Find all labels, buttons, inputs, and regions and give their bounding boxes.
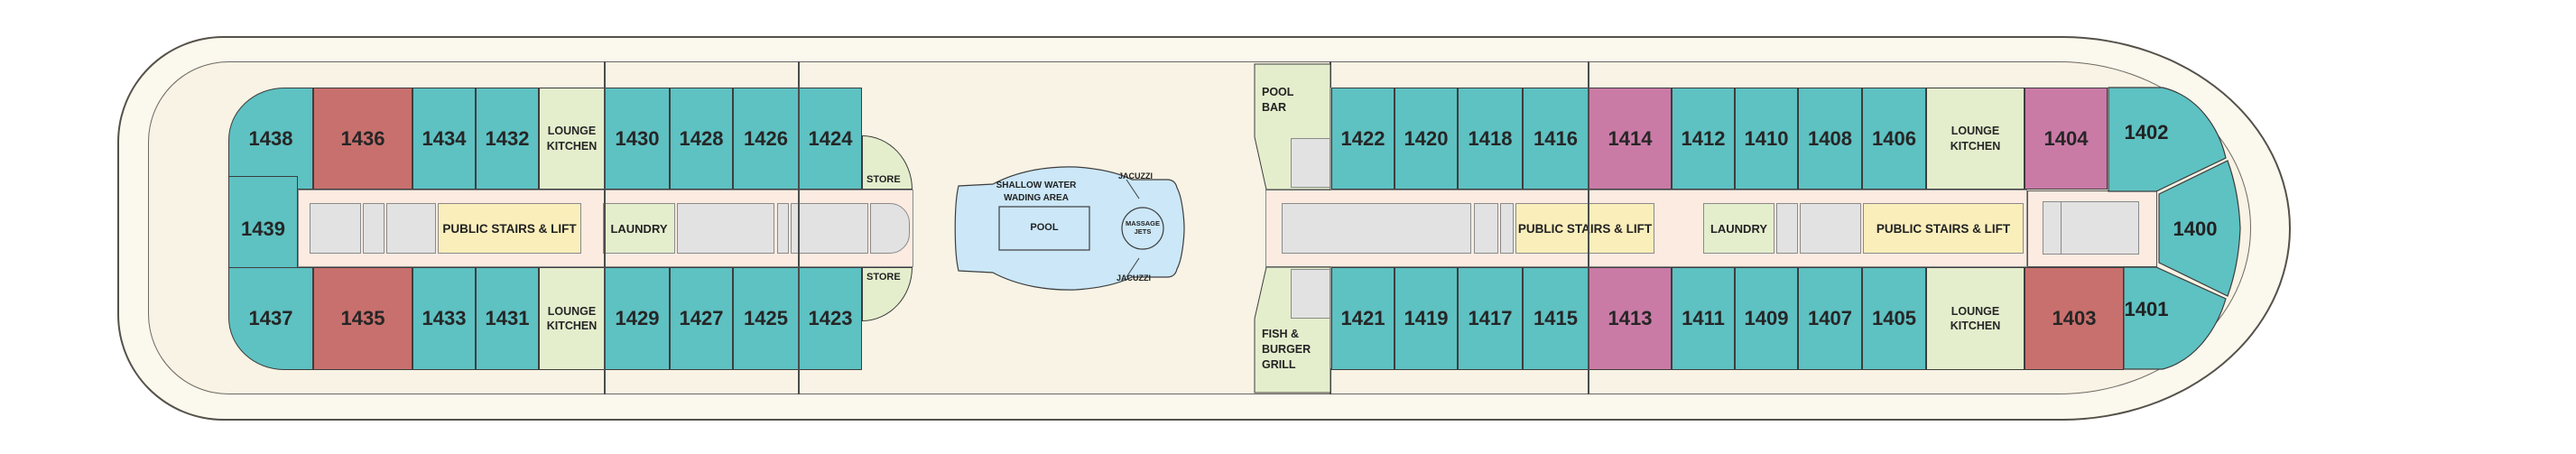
jacuzzi-bottom-label: JACUZZI [1107, 273, 1161, 283]
pool-bar-label: POOL BAR [1262, 85, 1305, 116]
deck-plan: PUBLIC STAIRS & LIFT LAUNDRY PUBLIC STAI… [0, 0, 2576, 454]
service-box [1291, 138, 1330, 188]
shallow-water-label: SHALLOW WATER [984, 181, 1089, 190]
jacuzzi-top-label: JACUZZI [1108, 171, 1163, 181]
cabin-1401-label: 1401 [2121, 298, 2172, 321]
massage-jets-label: MASSAGE JETS [1122, 219, 1163, 236]
cabin-1400-label: 1400 [2168, 218, 2222, 241]
service-box [1291, 269, 1330, 319]
wading-area-label: WADING AREA [984, 193, 1089, 203]
cabin-1402-label: 1402 [2121, 121, 2172, 144]
pool-label: POOL [999, 222, 1089, 233]
fish-burger-grill-label: FISH & BURGER GRILL [1262, 327, 1325, 373]
